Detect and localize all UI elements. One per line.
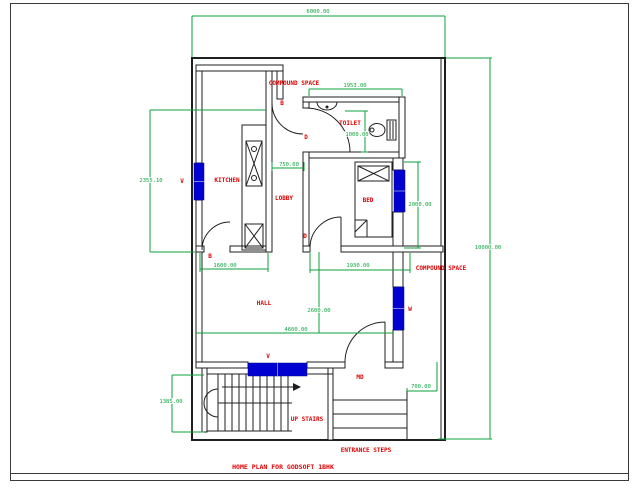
wall-bed-bottom xyxy=(341,246,443,252)
dim-kitchen-side: 2355.10 xyxy=(138,177,163,183)
wall-hall-bottom-left xyxy=(196,362,248,368)
wall-hall-bottom-right xyxy=(385,362,403,368)
room-label-lobby: LOBBY xyxy=(275,195,293,201)
dim-bed-height: 2000.00 xyxy=(407,201,432,207)
entry-door-arc xyxy=(272,103,303,134)
floor-plan: COMPOUND SPACE COMPOUND SPACE KITCHEN LO… xyxy=(0,0,640,489)
wall-kitchen-lobby xyxy=(266,71,272,252)
label-up-stairs: UP STAIRS xyxy=(291,416,324,422)
room-label-kitchen: KITCHEN xyxy=(214,177,239,183)
dim-plot-height: 10000.00 xyxy=(474,244,502,250)
drawing-title: HOME PLAN FOR GODSOFT 1BHK xyxy=(232,464,334,471)
sheet-frame xyxy=(11,4,629,481)
wc-tank xyxy=(387,120,396,140)
label-door-toilet: D xyxy=(304,134,308,140)
room-label-toilet: TOILET xyxy=(339,120,361,126)
room-label-bed: BED xyxy=(363,197,374,203)
wall-kitchen-top xyxy=(196,65,283,71)
room-label-hall: HALL xyxy=(257,300,271,306)
wall-kitchen-bottom-left xyxy=(196,246,204,252)
wall-porch-left xyxy=(328,368,333,440)
label-entrance-steps: ENTRANCE STEPS xyxy=(341,447,392,453)
wall-toilet-bed-divider xyxy=(309,152,399,158)
dim-lobby-width: 750.00 xyxy=(279,161,299,167)
dim-kitchen-side-lines xyxy=(150,110,266,252)
label-main-door: MD xyxy=(356,374,363,380)
dim-toilet-width-lines xyxy=(309,89,402,96)
main-door-arc xyxy=(345,322,385,362)
label-ventilator-hall: V xyxy=(266,353,270,359)
dim-hall-width: 4600.00 xyxy=(284,326,307,332)
bed-door-arc xyxy=(310,217,341,248)
label-window-hall: W xyxy=(408,306,412,312)
dim-stair-height: 1385.00 xyxy=(158,398,183,404)
dim-toilet-width: 1953.00 xyxy=(343,82,366,88)
label-door-b-entry: B xyxy=(280,100,284,106)
wall-hall-right-lower xyxy=(393,330,403,362)
room-label-compound-space-top: COMPOUND SPACE xyxy=(269,80,320,86)
label-ventilator-kitchen: V xyxy=(180,178,184,184)
entrance-steps-geometry xyxy=(333,388,407,440)
dim-toilet-height: 1000.00 xyxy=(344,131,369,137)
wall-hall-bottom-mid xyxy=(307,362,345,368)
dim-hall-height: 2600.00 xyxy=(306,307,331,313)
room-label-compound-space-right: COMPOUND SPACE xyxy=(416,265,467,271)
wall-kitchen-left-upper xyxy=(196,71,202,163)
kitchen-fixtures xyxy=(242,125,266,250)
dim-kitchen-width: 1600.00 xyxy=(213,262,236,268)
dim-bed-width: 1930.00 xyxy=(346,262,369,268)
kitchen-door-arc xyxy=(202,222,230,250)
stove-burner xyxy=(252,176,257,181)
wall-lobby-right-upper xyxy=(303,102,309,108)
wall-toilet-right xyxy=(399,97,405,158)
stove-burner xyxy=(252,147,257,152)
wc-bowl xyxy=(369,124,385,137)
toilet-door-arc xyxy=(306,108,350,152)
washbasin-drain xyxy=(326,106,329,109)
label-door-b-kitchen: B xyxy=(208,253,212,259)
wall-bed-right-upper xyxy=(393,158,403,170)
bed-furniture xyxy=(355,162,392,237)
stair-direction-arrow xyxy=(293,383,301,391)
door-swings xyxy=(202,103,385,362)
wc-detail xyxy=(370,128,374,132)
label-door-bed: D xyxy=(303,233,307,239)
wall-toilet-top xyxy=(303,97,405,102)
wall-kitchen-left-lower xyxy=(196,200,202,252)
dim-plot-width: 6000.00 xyxy=(306,8,329,14)
dim-plot-width-lines xyxy=(192,16,445,57)
dim-entrance-width: 700.00 xyxy=(411,383,431,389)
wall-bed-bottom-stub xyxy=(303,246,310,252)
